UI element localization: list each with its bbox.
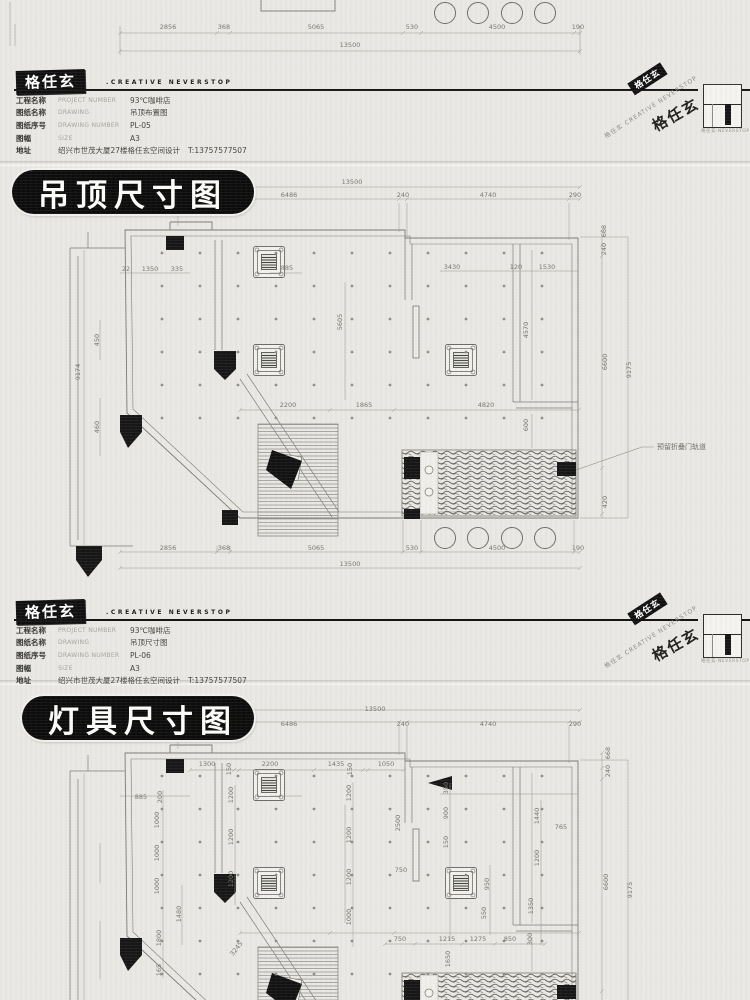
dim-label: 530 [406, 544, 418, 552]
dim-label: 1800 [155, 930, 163, 947]
dim-label: 1200 [227, 871, 235, 888]
downlight-dot [541, 874, 544, 877]
downlight-dot [503, 417, 506, 420]
downlight-dot [313, 318, 316, 321]
dim-label: 1865 [356, 401, 373, 409]
dim-label: 290 [569, 191, 581, 199]
dim-label: 1050 [378, 760, 395, 768]
downlight-dot [503, 907, 506, 910]
downlight-dot [351, 252, 354, 255]
dim-label: 2856 [160, 23, 177, 31]
downlight-dot [351, 973, 354, 976]
downlight-dot [161, 907, 164, 910]
downlight-dot [389, 252, 392, 255]
downlight-dot [465, 907, 468, 910]
downlight-dot [275, 318, 278, 321]
dim-label: 1200 [345, 785, 353, 802]
dim-label: 668 [600, 225, 608, 237]
downlight-dot [199, 775, 202, 778]
dim-label: 4500 [489, 23, 506, 31]
downlight-dot [427, 384, 430, 387]
downlight-dot [313, 417, 316, 420]
ceiling-plan-title: 吊顶尺寸图 [12, 170, 228, 215]
downlight-dot [275, 874, 278, 877]
dim-label: 1275 [470, 935, 487, 943]
address-row: 地址 绍兴市世茂大厦27楼格任玄空间设计 T:13757577507 [16, 674, 247, 687]
dim-label: 2200 [262, 760, 279, 768]
dim-label: 6486 [281, 720, 298, 728]
title-block-pl05: 格任玄 .CREATIVE NEVERSTOP 工程名称 PROJECT NUM… [0, 68, 750, 161]
drawing-label-cn: 图纸名称 [16, 107, 58, 118]
downlight-dot [199, 940, 202, 943]
downlight-dot [465, 841, 468, 844]
size-label-cn: 图幅 [16, 663, 58, 674]
dim-label: 368 [218, 544, 230, 552]
downlight-dot [351, 417, 354, 420]
ceiling-plan-title-banner: 吊顶尺寸图 [12, 170, 254, 214]
downlight-dot [237, 285, 240, 288]
brand-logo: 格任玄 [16, 599, 86, 625]
number-label-cn: 图纸序号 [16, 650, 58, 661]
round-column [468, 528, 489, 549]
address-value: 绍兴市世茂大厦27楼格任玄空间设计 [58, 145, 180, 156]
round-column [535, 3, 556, 24]
downlight-dot [351, 940, 354, 943]
project-label-cn: 工程名称 [16, 625, 58, 636]
dim-label: 885 [281, 264, 293, 272]
downlight-dot [427, 841, 430, 844]
downlight-dot [503, 252, 506, 255]
dim-label: 22 [122, 265, 130, 273]
dim-label: 765 [555, 823, 567, 831]
downlight-dot [389, 808, 392, 811]
downlight-dot [465, 940, 468, 943]
downlight-dot [313, 973, 316, 976]
downlight-dot [161, 351, 164, 354]
number-label-cn: 图纸序号 [16, 120, 58, 131]
downlight-dot [389, 285, 392, 288]
downlight-dots [161, 252, 544, 420]
dim-label: 420 [601, 496, 609, 508]
downlight-dot [427, 318, 430, 321]
downlight-dot [199, 252, 202, 255]
dim-label: 4740 [480, 720, 497, 728]
round-column [535, 528, 556, 549]
dim-label: 190 [572, 23, 584, 31]
dim-label: 6600 [601, 354, 609, 371]
size-label-en: SIZE [58, 135, 130, 142]
sheet1-plan-fragment: 28563685065530450019013500 [10, 0, 584, 55]
project-row: 工程名称 PROJECT NUMBER 93℃咖啡店 [16, 624, 247, 637]
downlight-dot [541, 351, 544, 354]
dim-label: 190 [572, 544, 584, 552]
column-circles [435, 3, 556, 24]
number-value: PL-05 [130, 121, 151, 130]
number-label-en: DRAWING NUMBER [58, 122, 130, 129]
drawing-label-cn: 图纸名称 [16, 637, 58, 648]
downlight-dot [465, 808, 468, 811]
downlight-dot [237, 417, 240, 420]
logo-stamp [703, 84, 742, 128]
downlight-dot [503, 841, 506, 844]
brand-tagline: .CREATIVE NEVERSTOP [106, 609, 233, 616]
dim-label: 1000 [153, 845, 161, 862]
dim-label: 1000 [153, 812, 161, 829]
round-column [502, 3, 523, 24]
downlight-dot [389, 351, 392, 354]
dim-label: 5605 [336, 314, 344, 331]
downlight-dot [237, 808, 240, 811]
size-row: 图幅 SIZE A3 [16, 662, 247, 675]
number-row: 图纸序号 DRAWING NUMBER PL-05 [16, 119, 247, 132]
stamp-caption: 格任玄·NEVERSTOP [701, 128, 750, 134]
drawing-row: 图纸名称 DRAWING 吊顶布置图 [16, 107, 247, 120]
project-label-en: PROJECT NUMBER [58, 627, 130, 634]
downlight-dot [389, 318, 392, 321]
downlight-dot [465, 384, 468, 387]
downlight-dot [427, 252, 430, 255]
dim-label: 300 [526, 933, 534, 945]
downlight-dot [161, 384, 164, 387]
dim-label: 1530 [539, 263, 556, 271]
downlight-dot [351, 808, 354, 811]
dim-label: 850 [504, 935, 516, 943]
divider [14, 89, 698, 91]
dim-label: 13500 [365, 705, 386, 713]
downlight-dot [275, 841, 278, 844]
downlight-dot [313, 285, 316, 288]
downlight-dot [351, 351, 354, 354]
dim-label: 885 [135, 793, 147, 801]
downlight-dot [199, 384, 202, 387]
dim-label: 240 [397, 720, 409, 728]
dim-label: 1200 [227, 787, 235, 804]
downlight-dot [199, 907, 202, 910]
brand-logo: 格任玄 [16, 69, 86, 95]
ceiling-dimension-plan: 预留折叠门轨道 13500648624047402902213503358853… [70, 178, 706, 577]
downlight-dot [503, 874, 506, 877]
downlight-dot [503, 318, 506, 321]
dim-label: 335 [171, 265, 183, 273]
dim-label: 1000 [153, 878, 161, 895]
downlight-dot [351, 318, 354, 321]
downlight-dot [503, 973, 506, 976]
project-value: 93℃咖啡店 [130, 95, 170, 106]
downlight-dot [313, 907, 316, 910]
address-row: 地址 绍兴市世茂大厦27楼格任玄空间设计 T:13757577507 [16, 144, 247, 157]
stamp-thin-line [712, 104, 713, 127]
dim-label: 3430 [444, 263, 461, 271]
dim-label: 4820 [478, 401, 495, 409]
downlight-dot [161, 252, 164, 255]
dim-label: 550 [480, 907, 488, 919]
project-label-en: PROJECT NUMBER [58, 97, 130, 104]
dim-label: 1440 [533, 808, 541, 825]
dim-label: 9175 [625, 362, 633, 379]
downlight-dot [503, 775, 506, 778]
size-row: 图幅 SIZE A3 [16, 132, 247, 145]
downlight-dot [313, 940, 316, 943]
phone-value: T:13757577507 [188, 676, 247, 685]
downlight-dot [427, 940, 430, 943]
downlight-dot [313, 808, 316, 811]
dim-label: 150 [346, 763, 354, 775]
downlight-dot [237, 252, 240, 255]
downlight-dot [161, 318, 164, 321]
drawing-value: 吊顶布置图 [130, 107, 168, 118]
dim-label: 1350 [142, 265, 159, 273]
downlight-dot [541, 384, 544, 387]
downlight-dot [199, 874, 202, 877]
dim-label: 150 [442, 836, 450, 848]
downlight-dot [275, 907, 278, 910]
downlight-dot [161, 808, 164, 811]
drawing-label-en: DRAWING [58, 639, 130, 646]
dim-label: 5065 [308, 23, 325, 31]
downlight-dot [389, 874, 392, 877]
downlight-dot [275, 351, 278, 354]
downlight-dot [237, 841, 240, 844]
downlight-dot [541, 252, 544, 255]
title-block-pl06: 格任玄 .CREATIVE NEVERSTOP 工程名称 PROJECT NUM… [0, 598, 750, 691]
dim-label: 1200 [345, 827, 353, 844]
downlight-dot [313, 351, 316, 354]
downlight-dot [389, 907, 392, 910]
downlight-dot [541, 417, 544, 420]
dim-label: 4500 [489, 544, 506, 552]
downlight-dot [313, 384, 316, 387]
project-label-cn: 工程名称 [16, 95, 58, 106]
dim-label: 290 [569, 720, 581, 728]
downlight-dot [237, 318, 240, 321]
size-value: A3 [130, 134, 140, 143]
address-label: 地址 [16, 675, 58, 686]
dim-label: 668 [604, 747, 612, 759]
downlight-dot [427, 775, 430, 778]
drawing-label-en: DRAWING [58, 109, 130, 116]
downlight-dot [199, 285, 202, 288]
downlight-dot [389, 384, 392, 387]
lighting-dim-lines [163, 768, 547, 978]
downlight-dot [199, 318, 202, 321]
dim-label: 1300 [199, 760, 216, 768]
dim-label: 6600 [602, 874, 610, 891]
dim-label: 165 [155, 964, 163, 976]
size-label-en: SIZE [58, 665, 130, 672]
dim-label: 750 [394, 935, 406, 943]
dim-label: 1480 [175, 906, 183, 923]
downlight-dot [541, 973, 544, 976]
annotation-label: 预留折叠门轨道 [657, 442, 706, 451]
dim-label: 3245 [228, 940, 244, 958]
dim-label: 150 [225, 763, 233, 775]
downlight-dot [161, 874, 164, 877]
downlight-dot [427, 874, 430, 877]
dim-label: 1200 [533, 850, 541, 867]
downlight-dot [275, 775, 278, 778]
dim-label: 2500 [394, 815, 402, 832]
dim-label: 13500 [340, 560, 361, 568]
dim-label: 1215 [439, 935, 456, 943]
downlight-dot [465, 351, 468, 354]
downlight-dot [237, 907, 240, 910]
dim-label: 950 [483, 878, 491, 890]
downlight-dot [313, 874, 316, 877]
round-column [435, 528, 456, 549]
dim-label: 2856 [160, 544, 177, 552]
downlight-dot [275, 417, 278, 420]
drawing-row: 图纸名称 DRAWING 吊顶尺寸图 [16, 637, 247, 650]
downlight-dot [275, 808, 278, 811]
downlight-dot [237, 384, 240, 387]
dim-label: 6486 [281, 191, 298, 199]
downlight-dot [427, 417, 430, 420]
downlight-dot [389, 417, 392, 420]
phone-value: T:13757577507 [188, 146, 247, 155]
downlight-dot [541, 808, 544, 811]
downlight-dot [313, 252, 316, 255]
dim-label: 1650 [444, 951, 452, 968]
downlight-dot [503, 351, 506, 354]
dim-label: 1350 [527, 898, 535, 915]
number-row: 图纸序号 DRAWING NUMBER PL-06 [16, 649, 247, 662]
downlight-dot [199, 417, 202, 420]
dim-label: 9175 [626, 882, 634, 899]
dim-label: 1000 [345, 909, 353, 926]
dim-label: 450 [93, 334, 101, 346]
dim-label: 1435 [328, 760, 345, 768]
downlight-dot [313, 841, 316, 844]
downlight-dot [427, 808, 430, 811]
downlight-dot [541, 775, 544, 778]
downlight-dot [503, 384, 506, 387]
scanned-cad-sheets-page: 28563685065530450019013500 预留折叠门轨道 13500… [0, 0, 750, 1000]
divider [14, 619, 698, 621]
downlight-dot [427, 973, 430, 976]
downlight-dot [275, 973, 278, 976]
dim-label: 368 [218, 23, 230, 31]
size-label-cn: 图幅 [16, 133, 58, 144]
dim-label: 460 [93, 421, 101, 433]
round-column [435, 3, 456, 24]
downlight-dot [541, 841, 544, 844]
downlight-dot [275, 384, 278, 387]
downlight-dot [465, 874, 468, 877]
downlight-dot [389, 775, 392, 778]
downlight-dot [427, 285, 430, 288]
dim-label: 4740 [480, 191, 497, 199]
downlight-dot [465, 318, 468, 321]
downlight-dot [351, 285, 354, 288]
drawing-value: 吊顶尺寸图 [130, 637, 168, 648]
downlight-dot [161, 417, 164, 420]
downlight-dot [237, 973, 240, 976]
sheet-seam [0, 161, 750, 167]
project-row: 工程名称 PROJECT NUMBER 93℃咖啡店 [16, 94, 247, 107]
lighting-plan-title: 灯具尺寸图 [22, 696, 238, 741]
project-value: 93℃咖啡店 [130, 625, 170, 636]
downlight-dot [237, 351, 240, 354]
dim-label: 4570 [522, 322, 530, 339]
annotation-leader-line [576, 447, 654, 470]
address-label: 地址 [16, 145, 58, 156]
stamp-line [704, 634, 741, 635]
downlight-dot [465, 252, 468, 255]
stamp-line [704, 104, 741, 105]
round-column [468, 3, 489, 24]
stamp-bar [725, 104, 731, 125]
downlight-dot [237, 874, 240, 877]
brand-tagline: .CREATIVE NEVERSTOP [106, 79, 233, 86]
number-value: PL-06 [130, 651, 151, 660]
downlight-dot [389, 940, 392, 943]
downlight-dot [541, 907, 544, 910]
dim-label: 750 [395, 866, 407, 874]
dim-label: 240 [604, 765, 612, 777]
address-value: 绍兴市世茂大厦27楼格任玄空间设计 [58, 675, 180, 686]
downlight-dot [199, 808, 202, 811]
downlight-dot [465, 417, 468, 420]
downlight-dot [237, 775, 240, 778]
stamp-caption: 格任玄·NEVERSTOP [701, 658, 750, 664]
downlight-dot [465, 973, 468, 976]
stamp-thin-line [712, 634, 713, 657]
downlight-dot [199, 973, 202, 976]
downlight-dot [541, 318, 544, 321]
number-label-en: DRAWING NUMBER [58, 652, 130, 659]
dim-label: 2200 [280, 401, 297, 409]
dim-label: 5065 [308, 544, 325, 552]
dim-label: 240 [397, 191, 409, 199]
size-value: A3 [130, 664, 140, 673]
dim-label: 1200 [345, 869, 353, 886]
downlight-dot [465, 285, 468, 288]
dim-label: 9174 [74, 364, 82, 381]
downlight-dot [541, 285, 544, 288]
downlight-dot [503, 285, 506, 288]
downlight-dot [351, 384, 354, 387]
dim-label: 240 [600, 243, 608, 255]
dim-label: 350 [442, 782, 450, 794]
dim-label: 120 [510, 263, 522, 271]
dim-label: 530 [406, 23, 418, 31]
logo-stamp [703, 614, 742, 658]
downlight-dot [161, 285, 164, 288]
downlight-dot [541, 940, 544, 943]
downlight-dot [389, 841, 392, 844]
dim-label: 1200 [227, 829, 235, 846]
stamp-bar [725, 634, 731, 655]
dim-label: 13500 [340, 41, 361, 49]
downlight-dot [275, 252, 278, 255]
downlight-dot [389, 973, 392, 976]
downlight-dot [161, 775, 164, 778]
downlight-dot [427, 351, 430, 354]
downlight-dot [503, 808, 506, 811]
downlight-dot [161, 841, 164, 844]
downlight-dot [427, 907, 430, 910]
downlight-dot [275, 940, 278, 943]
lighting-plan-title-banner: 灯具尺寸图 [22, 696, 254, 740]
downlight-dot [465, 775, 468, 778]
dim-label: 13500 [342, 178, 363, 186]
dim-label: 900 [442, 807, 450, 819]
lighting-dimension-plan: 1350064862404740290130015022001435150105… [70, 705, 634, 1000]
downlight-dot [313, 775, 316, 778]
downlight-dot [199, 841, 202, 844]
dim-label: 600 [522, 419, 530, 431]
downlight-dot [275, 285, 278, 288]
